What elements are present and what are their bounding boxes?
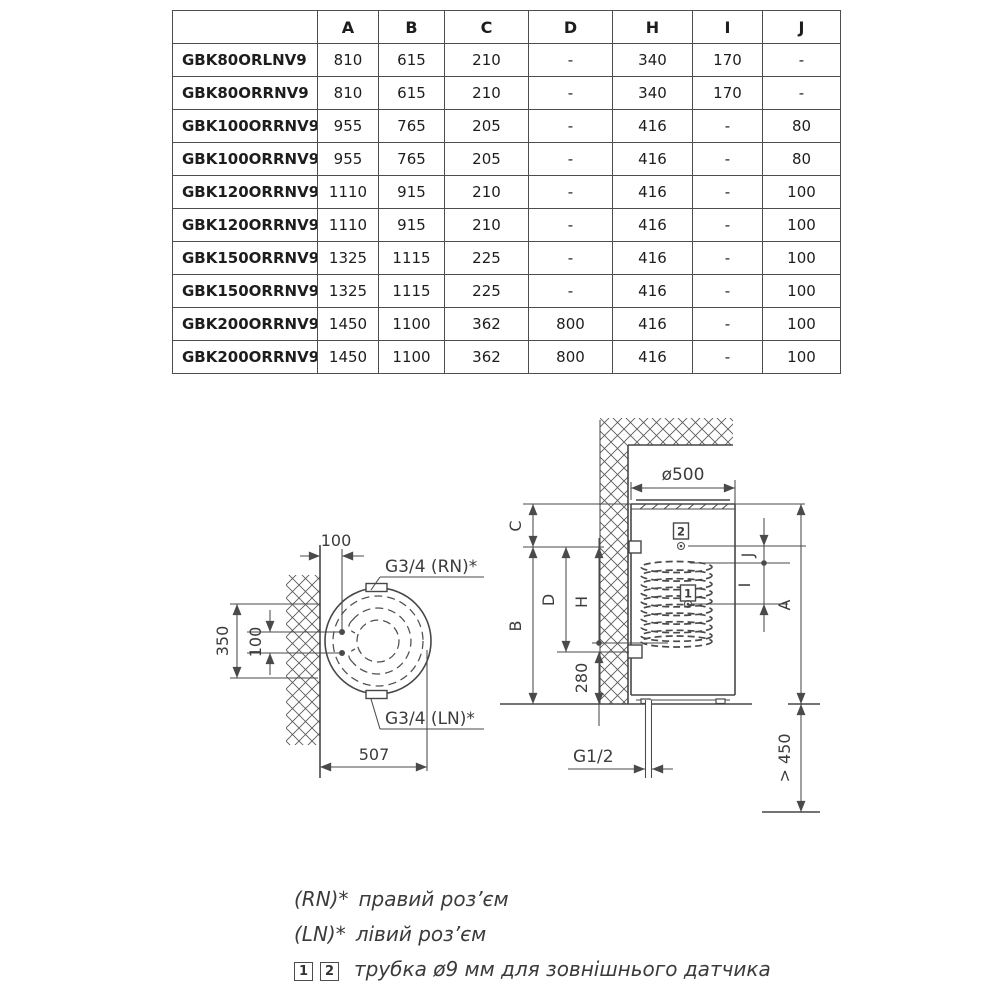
value-cell: 1450: [318, 341, 379, 374]
value-cell: 1110: [318, 209, 379, 242]
value-cell: 80: [763, 110, 841, 143]
pipe-point-lower: [339, 650, 345, 656]
value-cell: 416: [613, 308, 693, 341]
dim-280: 280: [572, 663, 591, 694]
header-cell: I: [693, 11, 763, 44]
legend-marker-1: 1: [294, 962, 313, 981]
table-row: GBK120ORRNV91110915210-416-100: [173, 209, 841, 242]
model-cell: GBK200ORRNV9: [173, 341, 318, 374]
value-cell: -: [763, 77, 841, 110]
dim-i: I: [735, 583, 754, 588]
value-cell: -: [693, 308, 763, 341]
value-cell: -: [529, 275, 613, 308]
header-cell: B: [379, 11, 445, 44]
table-row: GBK80ORLNV9810615210-340170-: [173, 44, 841, 77]
dim-a: A: [775, 599, 794, 610]
dim-b: B: [506, 621, 525, 632]
top-view: 100 350 100 507 G3/4 (RN)* G3/4 (LN)*: [213, 531, 484, 778]
value-cell: -: [529, 242, 613, 275]
legend-ln-prefix: (LN)*: [294, 922, 346, 946]
dim-h: H: [572, 596, 591, 608]
table-row: GBK150ORRNV913251115225-416-100: [173, 242, 841, 275]
dim-507: 507: [359, 745, 390, 764]
value-cell: 100: [763, 308, 841, 341]
value-cell: -: [693, 176, 763, 209]
value-cell: 915: [379, 209, 445, 242]
table-row: GBK120ORRNV91110915210-416-100: [173, 176, 841, 209]
value-cell: 225: [445, 242, 529, 275]
value-cell: -: [529, 176, 613, 209]
coil-top-view: [353, 608, 411, 674]
model-cell: GBK100ORRNV9: [173, 143, 318, 176]
value-cell: 210: [445, 176, 529, 209]
value-cell: 100: [763, 275, 841, 308]
value-cell: 362: [445, 341, 529, 374]
dimensions-table: ABCDHIJ GBK80ORLNV9810615210-340170-GBK8…: [172, 10, 841, 374]
dim-clearance: > 450: [775, 733, 794, 782]
table-row: GBK200ORRNV914501100362800416-100: [173, 308, 841, 341]
value-cell: 1100: [379, 308, 445, 341]
value-cell: 340: [613, 77, 693, 110]
table-row: GBK200ORRNV914501100362800416-100: [173, 341, 841, 374]
value-cell: 1450: [318, 308, 379, 341]
dim-d: D: [539, 594, 558, 606]
value-cell: 1100: [379, 341, 445, 374]
spec-table-header-row: ABCDHIJ: [173, 11, 841, 44]
value-cell: 100: [763, 341, 841, 374]
value-cell: 1325: [318, 275, 379, 308]
legend-rn-text: правий роз’єм: [358, 887, 508, 911]
label-g34-ln: G3/4 (LN)*: [385, 709, 475, 729]
value-cell: 100: [763, 176, 841, 209]
value-cell: 1325: [318, 242, 379, 275]
value-cell: 1110: [318, 176, 379, 209]
legend-rn: (RN)*правий роз’єм: [294, 884, 509, 914]
model-cell: GBK200ORRNV9: [173, 308, 318, 341]
value-cell: -: [693, 209, 763, 242]
tank-outline-top: [325, 588, 431, 694]
value-cell: 210: [445, 209, 529, 242]
value-cell: 765: [379, 143, 445, 176]
value-cell: -: [529, 143, 613, 176]
value-cell: 416: [613, 143, 693, 176]
value-cell: 416: [613, 275, 693, 308]
dim-350: 350: [213, 626, 232, 657]
legend-rn-prefix: (RN)*: [294, 887, 348, 911]
value-cell: 210: [445, 44, 529, 77]
header-cell: C: [445, 11, 529, 44]
front-view: G1/2 ø500 C B D H 2: [500, 418, 820, 812]
header-cell: D: [529, 11, 613, 44]
value-cell: -: [693, 242, 763, 275]
value-cell: -: [529, 77, 613, 110]
dim-top-offset: 100: [321, 531, 352, 550]
label-g12: G1/2: [573, 747, 614, 767]
value-cell: 810: [318, 44, 379, 77]
table-row: GBK80ORRNV9810615210-340170-: [173, 77, 841, 110]
legend-ln-text: лівий роз’єм: [356, 922, 486, 946]
value-cell: -: [693, 143, 763, 176]
table-row: GBK100ORRNV9955765205-416-80: [173, 110, 841, 143]
spec-table-body: GBK80ORLNV9810615210-340170-GBK80ORRNV98…: [173, 44, 841, 374]
table-row: GBK150ORRNV913251115225-416-100: [173, 275, 841, 308]
header-cell: A: [318, 11, 379, 44]
rn-connection-notch: [366, 584, 387, 592]
legend-marker-2: 2: [320, 962, 339, 981]
value-cell: 615: [379, 44, 445, 77]
legend-sensors: 12трубка ø9 мм для зовнішнього датчика: [294, 954, 771, 984]
value-cell: 955: [318, 110, 379, 143]
dim-pipe-spacing: 100: [246, 627, 265, 658]
value-cell: 100: [763, 242, 841, 275]
spec-sheet-page: ABCDHIJ GBK80ORLNV9810615210-340170-GBK8…: [0, 0, 1000, 1000]
value-cell: 416: [613, 242, 693, 275]
sensor-1-digit: 1: [684, 587, 692, 601]
model-cell: GBK80ORLNV9: [173, 44, 318, 77]
value-cell: 1115: [379, 242, 445, 275]
value-cell: 416: [613, 209, 693, 242]
wall-hatch-top-view: [286, 575, 320, 745]
model-cell: GBK150ORRNV9: [173, 242, 318, 275]
header-cell: H: [613, 11, 693, 44]
value-cell: 800: [529, 341, 613, 374]
value-cell: 210: [445, 77, 529, 110]
header-cell: J: [763, 11, 841, 44]
value-cell: -: [529, 44, 613, 77]
legend-ln: (LN)*лівий роз’єм: [294, 919, 486, 949]
value-cell: 416: [613, 110, 693, 143]
value-cell: -: [693, 110, 763, 143]
lower-bracket: [628, 645, 642, 658]
value-cell: -: [763, 44, 841, 77]
model-cell: GBK120ORRNV9: [173, 176, 318, 209]
dim-j: J: [738, 553, 757, 559]
value-cell: 170: [693, 44, 763, 77]
upper-bracket: [629, 541, 641, 553]
value-cell: 615: [379, 77, 445, 110]
value-cell: -: [529, 209, 613, 242]
value-cell: 765: [379, 110, 445, 143]
value-cell: 416: [613, 176, 693, 209]
model-cell: GBK80ORRNV9: [173, 77, 318, 110]
value-cell: 170: [693, 77, 763, 110]
value-cell: 915: [379, 176, 445, 209]
value-cell: 205: [445, 110, 529, 143]
value-cell: 340: [613, 44, 693, 77]
value-cell: -: [529, 110, 613, 143]
value-cell: 205: [445, 143, 529, 176]
pipe-point-upper: [339, 629, 345, 635]
value-cell: 810: [318, 77, 379, 110]
model-cell: GBK120ORRNV9: [173, 209, 318, 242]
legend-sensors-text: трубка ø9 мм для зовнішнього датчика: [354, 957, 771, 981]
value-cell: 100: [763, 209, 841, 242]
value-cell: -: [693, 275, 763, 308]
header-cell-model: [173, 11, 318, 44]
value-cell: 416: [613, 341, 693, 374]
value-cell: -: [693, 341, 763, 374]
value-cell: 800: [529, 308, 613, 341]
value-cell: 80: [763, 143, 841, 176]
model-cell: GBK100ORRNV9: [173, 110, 318, 143]
dim-diameter: ø500: [662, 465, 705, 485]
model-cell: GBK150ORRNV9: [173, 275, 318, 308]
label-g34-rn: G3/4 (RN)*: [385, 557, 477, 577]
dim-c: C: [506, 520, 525, 531]
technical-drawing: 100 350 100 507 G3/4 (RN)* G3/4 (LN)*: [180, 385, 860, 830]
value-cell: 955: [318, 143, 379, 176]
value-cell: 225: [445, 275, 529, 308]
ln-connection-notch: [366, 691, 387, 699]
table-row: GBK100ORRNV9955765205-416-80: [173, 143, 841, 176]
value-cell: 1115: [379, 275, 445, 308]
value-cell: 362: [445, 308, 529, 341]
sensor-2-digit: 2: [677, 525, 685, 539]
